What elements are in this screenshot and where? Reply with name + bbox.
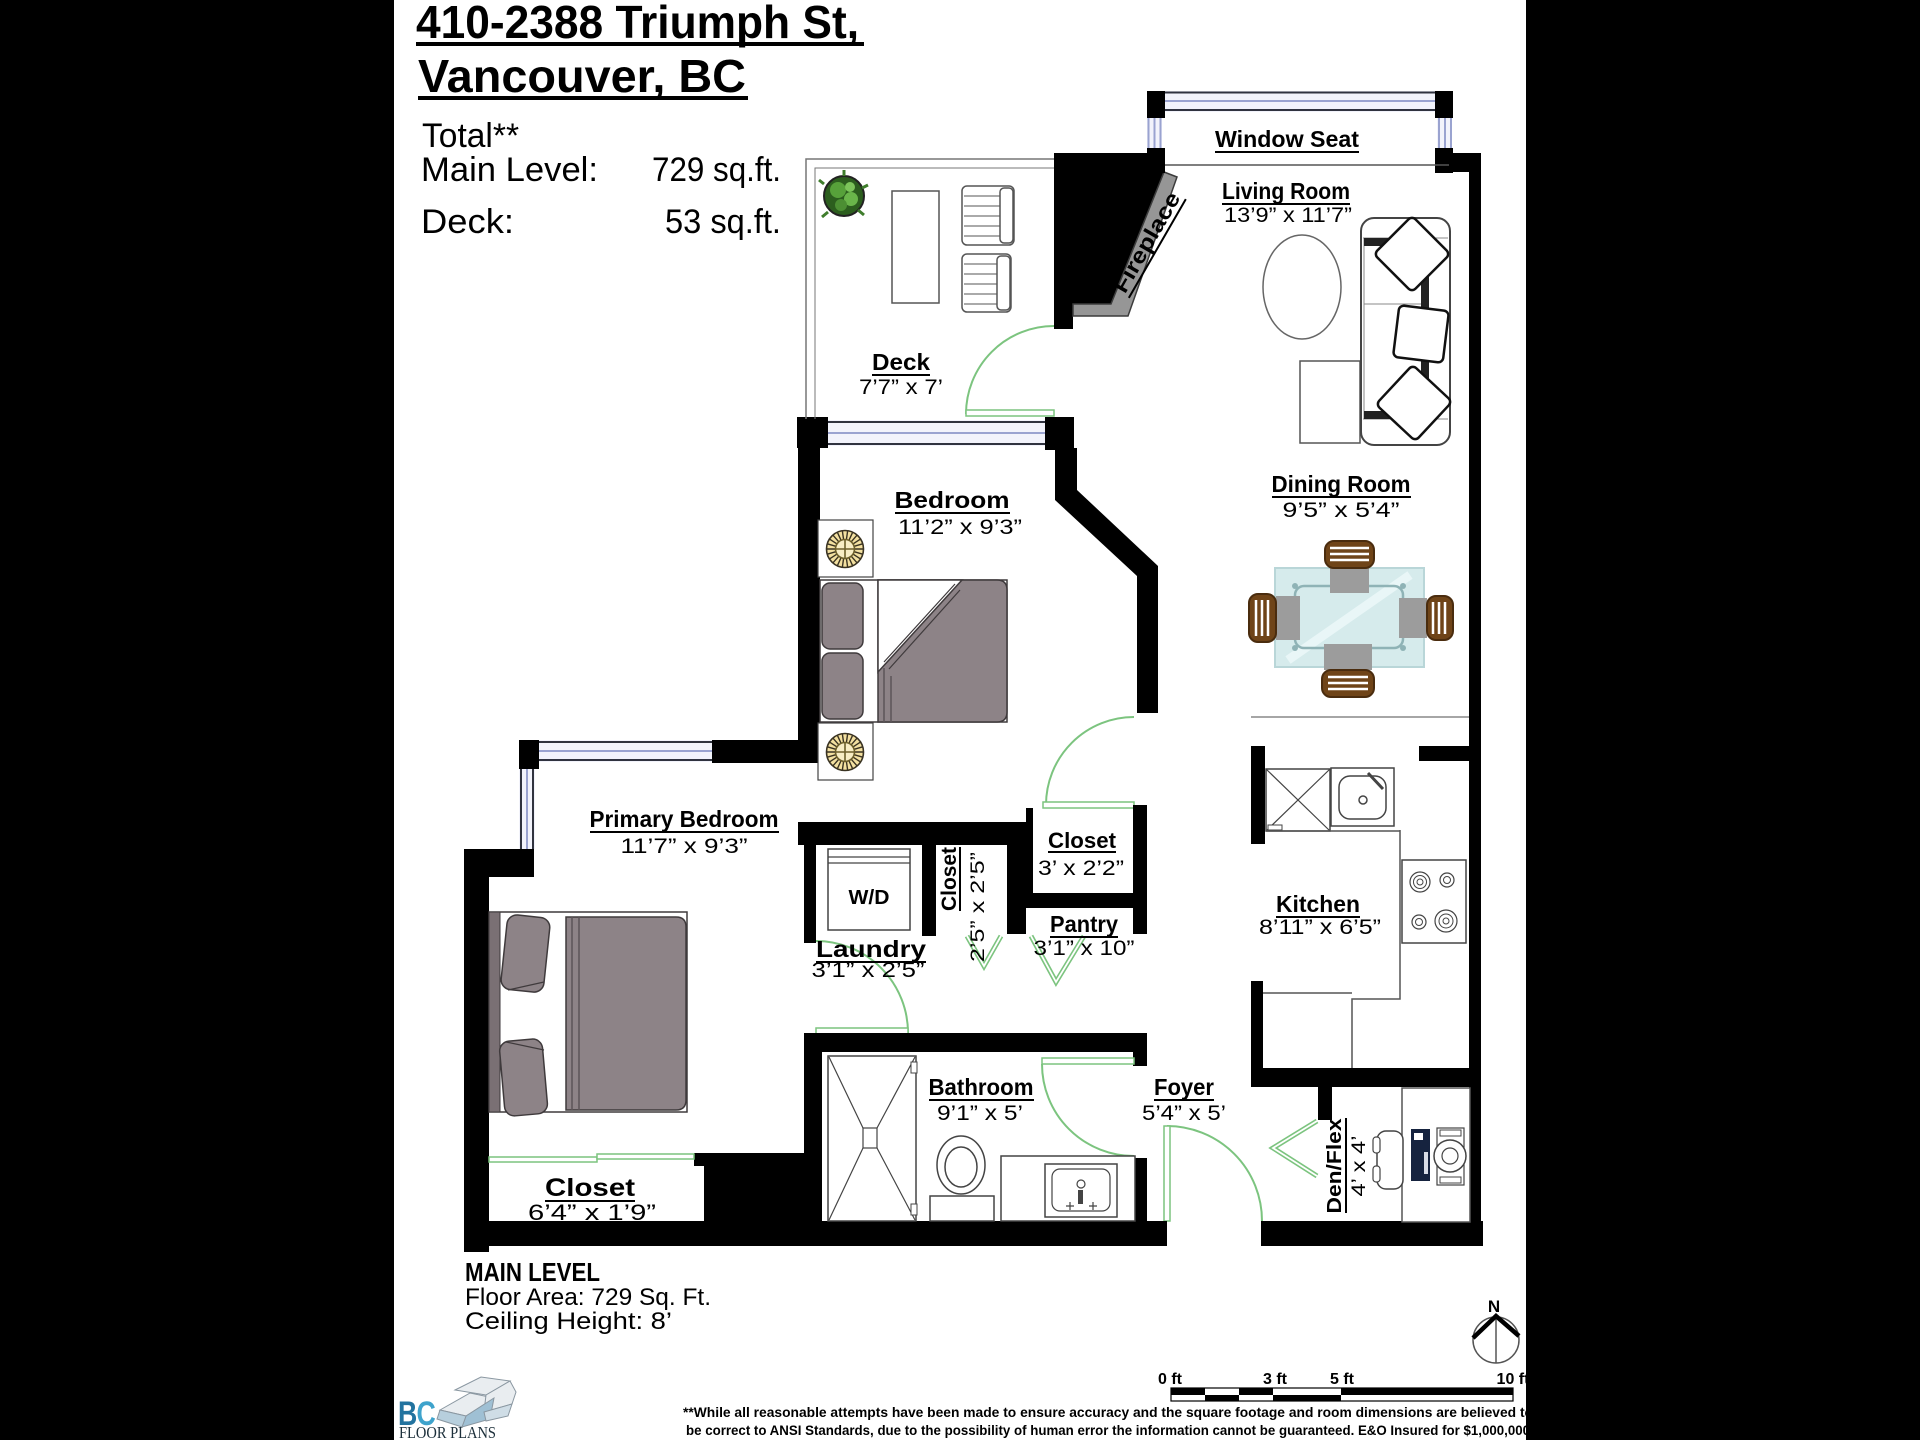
- svg-text:Foyer: Foyer: [1154, 1074, 1214, 1100]
- svg-text:8’11” x 6’5”: 8’11” x 6’5”: [1259, 916, 1381, 939]
- svg-text:Floor Area: 729 Sq. Ft.: Floor Area: 729 Sq. Ft.: [465, 1284, 711, 1311]
- svg-text:5’4” x 5’: 5’4” x 5’: [1142, 1102, 1226, 1125]
- svg-text:Living Room: Living Room: [1222, 178, 1350, 204]
- svg-text:MAIN LEVEL: MAIN LEVEL: [465, 1257, 600, 1287]
- svg-text:Window Seat: Window Seat: [1215, 126, 1359, 152]
- svg-text:729 sq.ft.: 729 sq.ft.: [652, 151, 781, 189]
- svg-text:7’7” x 7’: 7’7” x 7’: [859, 376, 943, 399]
- svg-text:**While all reasonable attempt: **While all reasonable attempts have bee…: [683, 1405, 1533, 1420]
- svg-text:Ceiling Height: 8’: Ceiling Height: 8’: [465, 1308, 672, 1335]
- svg-text:Deck: Deck: [872, 349, 930, 375]
- svg-text:W/D: W/D: [849, 887, 890, 909]
- svg-text:3’1” x 2’5”: 3’1” x 2’5”: [812, 959, 925, 982]
- svg-text:Bathroom: Bathroom: [929, 1074, 1034, 1100]
- svg-text:Closet: Closet: [1048, 828, 1117, 853]
- svg-text:3 ft: 3 ft: [1263, 1371, 1288, 1388]
- svg-text:6’4” x 1’9”: 6’4” x 1’9”: [528, 1200, 656, 1225]
- svg-text:Total**: Total**: [422, 117, 519, 155]
- svg-text:13’9” x 11’7”: 13’9” x 11’7”: [1224, 204, 1352, 227]
- svg-text:Deck:: Deck:: [421, 203, 514, 241]
- svg-text:9’1” x 5’: 9’1” x 5’: [937, 1102, 1023, 1125]
- svg-text:53 sq.ft.: 53 sq.ft.: [665, 203, 781, 241]
- svg-text:Den/Flex: Den/Flex: [1324, 1119, 1346, 1214]
- svg-text:3’1” x 10”: 3’1” x 10”: [1034, 937, 1135, 960]
- svg-text:11’2” x 9’3”: 11’2” x 9’3”: [898, 516, 1022, 539]
- svg-text:0 ft: 0 ft: [1158, 1371, 1183, 1388]
- svg-text:Vancouver, BC: Vancouver, BC: [418, 50, 746, 102]
- svg-text:FLOOR PLANS: FLOOR PLANS: [399, 1423, 496, 1440]
- svg-text:Primary Bedroom: Primary Bedroom: [590, 806, 779, 832]
- svg-text:4’ x 4’: 4’ x 4’: [1349, 1136, 1370, 1197]
- svg-text:Bedroom: Bedroom: [895, 487, 1010, 513]
- svg-text:9’5” x 5’4”: 9’5” x 5’4”: [1283, 499, 1400, 522]
- svg-text:3’ x 2’2”: 3’ x 2’2”: [1038, 857, 1124, 880]
- svg-text:Pantry: Pantry: [1050, 911, 1118, 937]
- svg-text:5 ft: 5 ft: [1330, 1371, 1355, 1388]
- svg-text:Main Level:: Main Level:: [421, 151, 598, 189]
- svg-text:11’7” x 9’3”: 11’7” x 9’3”: [621, 835, 748, 858]
- svg-text:410-2388 Triumph St,: 410-2388 Triumph St,: [416, 0, 859, 48]
- svg-text:10 ft: 10 ft: [1497, 1371, 1531, 1388]
- svg-text:2’5” x 2’5”: 2’5” x 2’5”: [968, 852, 989, 962]
- svg-text:Kitchen: Kitchen: [1276, 891, 1360, 917]
- svg-text:be correct to ANSI Standards,: be correct to ANSI Standards, due to the…: [686, 1423, 1530, 1438]
- svg-text:Closet: Closet: [938, 847, 961, 911]
- svg-text:N: N: [1488, 1297, 1500, 1316]
- svg-text:Closet: Closet: [545, 1174, 636, 1202]
- svg-text:Dining Room: Dining Room: [1272, 471, 1411, 497]
